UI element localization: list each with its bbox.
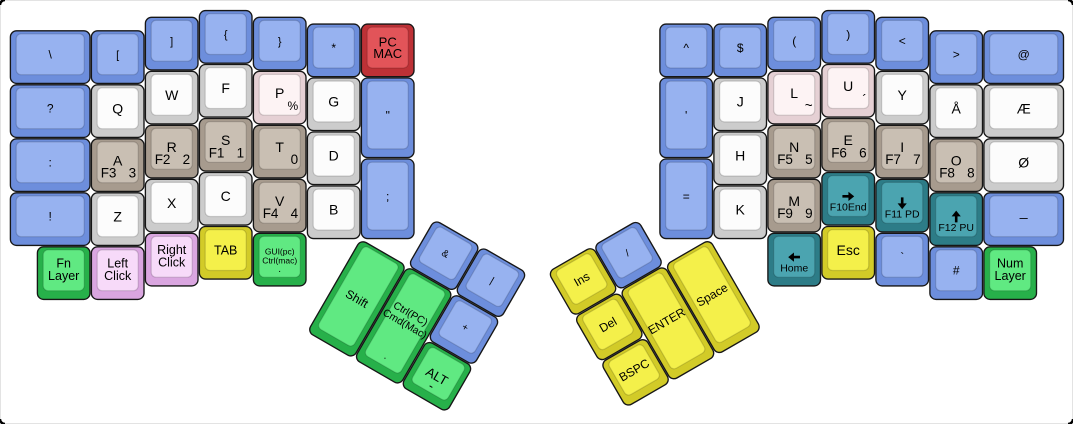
svg-text:Å: Å <box>952 100 962 116</box>
svg-text:F4: F4 <box>263 206 279 221</box>
svg-text:D: D <box>329 148 339 164</box>
svg-text:L: L <box>790 85 798 101</box>
svg-text:F9: F9 <box>777 206 793 221</box>
svg-text:.: . <box>278 264 281 275</box>
svg-text:%: % <box>288 99 299 113</box>
svg-text:MAC: MAC <box>373 46 402 61</box>
svg-text:F: F <box>221 80 230 96</box>
svg-text:]: ] <box>170 36 173 48</box>
svg-text:F12 PU: F12 PU <box>938 222 974 234</box>
svg-text:^: ^ <box>683 41 689 55</box>
svg-text:U: U <box>843 78 853 94</box>
svg-text:!: ! <box>49 210 52 224</box>
svg-text:3: 3 <box>129 166 137 181</box>
svg-text:F11 PD: F11 PD <box>885 208 920 220</box>
svg-text:Click: Click <box>104 269 132 283</box>
svg-text:": " <box>386 108 390 122</box>
svg-text:$: $ <box>737 41 744 55</box>
svg-text:}: } <box>278 36 282 48</box>
svg-text:6: 6 <box>859 145 867 160</box>
svg-text:J: J <box>737 94 744 110</box>
svg-text:Click: Click <box>158 256 186 270</box>
svg-text:2: 2 <box>183 152 191 167</box>
svg-text:8: 8 <box>967 166 975 181</box>
svg-text:0: 0 <box>291 152 299 167</box>
svg-text:<: < <box>899 34 906 48</box>
svg-text:Layer: Layer <box>48 269 79 283</box>
svg-text:Y: Y <box>898 87 908 103</box>
svg-text:F6: F6 <box>831 145 847 160</box>
svg-text:(: ( <box>792 34 796 48</box>
svg-text:Esc: Esc <box>837 242 860 258</box>
svg-text:F2: F2 <box>155 152 171 167</box>
svg-text:=: = <box>683 189 690 203</box>
svg-text:~: ~ <box>805 98 813 113</box>
svg-text:W: W <box>165 87 179 103</box>
svg-text:1: 1 <box>237 145 245 160</box>
svg-text:K: K <box>736 202 746 218</box>
svg-text:Ø: Ø <box>1018 154 1029 170</box>
svg-text:`: ` <box>900 250 904 264</box>
svg-text:[: [ <box>116 49 119 61</box>
svg-text:4: 4 <box>291 206 299 221</box>
svg-text:#: # <box>953 264 960 278</box>
svg-text:Home: Home <box>780 262 808 274</box>
svg-text:': ' <box>685 108 687 122</box>
svg-text:Z: Z <box>113 208 122 224</box>
svg-text:5: 5 <box>805 152 813 167</box>
svg-text:H: H <box>735 148 745 164</box>
svg-text:;: ; <box>386 189 389 203</box>
svg-text:TAB: TAB <box>214 244 237 258</box>
svg-text:>: > <box>953 48 960 62</box>
svg-text:Q: Q <box>112 100 123 116</box>
svg-text:F5: F5 <box>777 152 793 167</box>
svg-text:C: C <box>221 188 231 204</box>
svg-text:7: 7 <box>913 152 921 167</box>
svg-text:F1: F1 <box>209 145 225 160</box>
svg-text:G: G <box>328 94 339 110</box>
svg-text:9: 9 <box>805 206 813 221</box>
svg-text:B: B <box>329 202 338 218</box>
svg-text:P: P <box>275 85 284 101</box>
svg-text:): ) <box>846 27 850 41</box>
svg-text:Layer: Layer <box>995 269 1026 283</box>
svg-text:Æ: Æ <box>1017 100 1031 116</box>
svg-text:F3: F3 <box>101 166 117 181</box>
svg-text:X: X <box>167 195 177 211</box>
svg-text:F8: F8 <box>939 166 955 181</box>
svg-text:?: ? <box>47 102 54 116</box>
svg-text::: : <box>49 156 52 170</box>
svg-text:_: _ <box>1019 203 1028 219</box>
svg-text:{: { <box>224 29 228 41</box>
svg-text:T: T <box>275 139 284 155</box>
svg-text:´: ´ <box>862 91 866 106</box>
svg-text:*: * <box>331 41 336 55</box>
svg-text:@: @ <box>1018 48 1030 62</box>
svg-text:F10End: F10End <box>830 202 867 214</box>
svg-text:F7: F7 <box>885 152 901 167</box>
